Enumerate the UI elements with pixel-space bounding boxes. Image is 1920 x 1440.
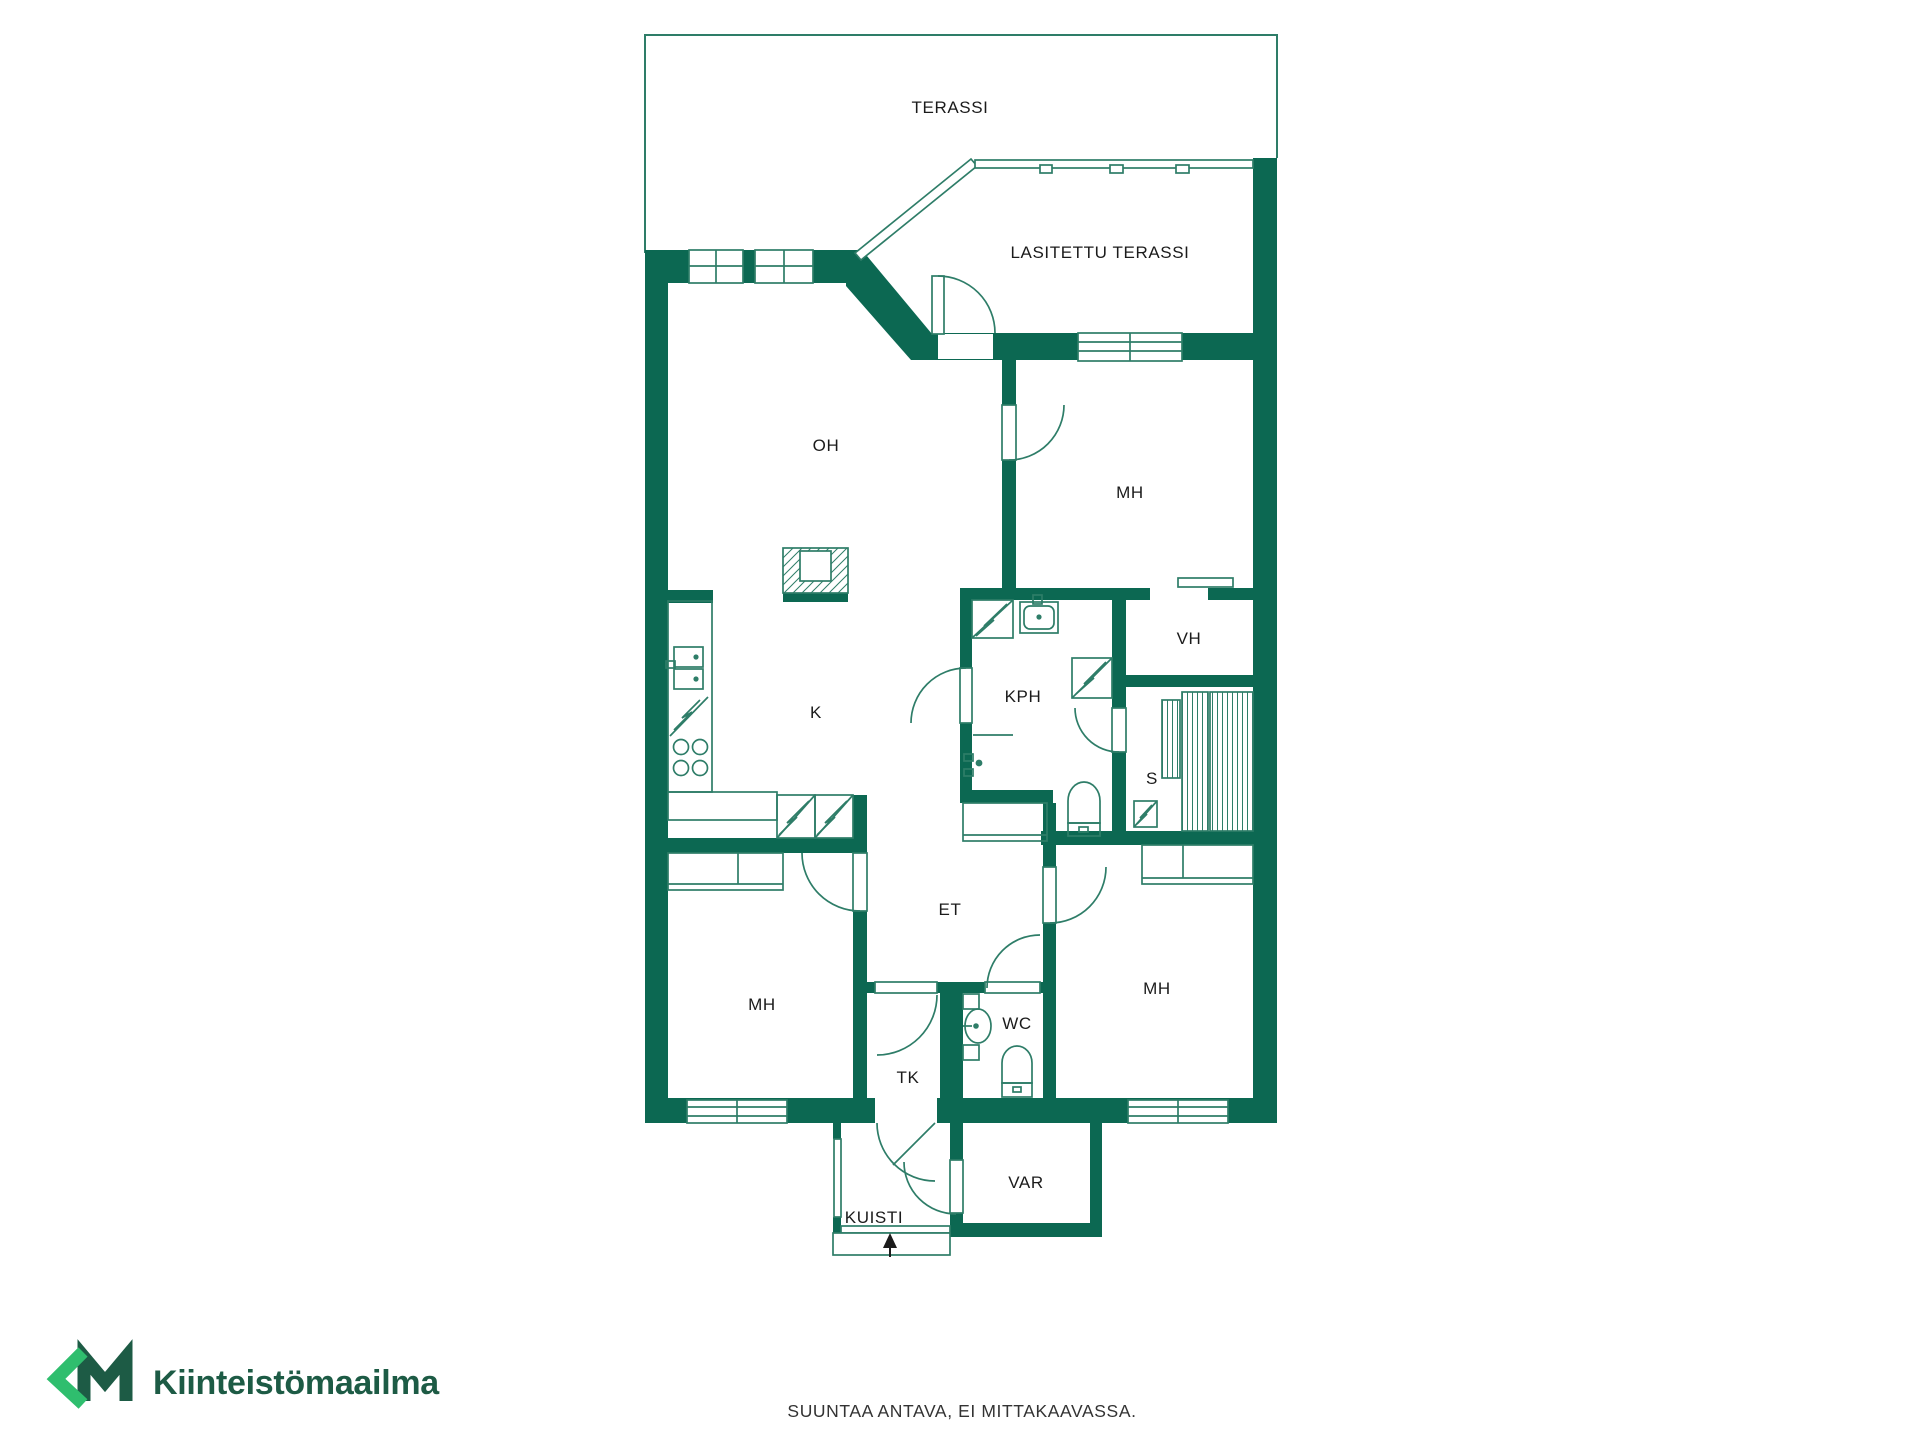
wc-fixtures xyxy=(963,994,1032,1097)
kph-toilet xyxy=(1068,782,1100,836)
door-mh-left xyxy=(802,853,867,911)
room-label-tk: TK xyxy=(897,1068,920,1087)
stove xyxy=(674,740,708,776)
freezer xyxy=(815,795,853,838)
wardrobe-mh-right xyxy=(1142,845,1253,884)
door-kph xyxy=(911,668,972,723)
brand-logo: Kiinteistömaailma xyxy=(56,1352,440,1404)
fireplace xyxy=(783,548,848,593)
floor-plan-svg: TERASSI LASITETTU TERASSI OH MH VH KPH S… xyxy=(0,0,1920,1440)
door-var xyxy=(904,1160,963,1214)
door-wc xyxy=(985,935,1040,993)
washing-machine xyxy=(972,600,1013,638)
room-label-vh: VH xyxy=(1177,629,1202,648)
window-mh-left xyxy=(687,1100,787,1123)
porch-structure xyxy=(833,1139,950,1257)
wc-toilet xyxy=(1002,1046,1032,1097)
disclaimer-text: SUUNTAA ANTAVA, EI MITTAKAAVASSA. xyxy=(787,1401,1136,1421)
room-label-s: S xyxy=(1146,769,1158,788)
window-mh-right xyxy=(1128,1100,1228,1123)
room-label-lasitettu-terassi: LASITETTU TERASSI xyxy=(1011,243,1190,262)
wardrobe-mh-left xyxy=(668,853,783,890)
wc-washbasin xyxy=(963,1009,991,1043)
door-terrace xyxy=(932,276,995,359)
room-label-oh: OH xyxy=(813,436,840,455)
terrace-outline xyxy=(645,35,1277,253)
kitchen-sink xyxy=(666,647,703,689)
room-label-var: VAR xyxy=(1008,1173,1044,1192)
door-et-tk xyxy=(875,982,937,1055)
sauna-stove xyxy=(1134,801,1157,827)
kitchen-fixtures xyxy=(666,601,853,838)
room-label-wc: WC xyxy=(1002,1014,1032,1033)
brand-name: Kiinteistömaailma xyxy=(153,1364,440,1402)
door-oh-mh xyxy=(1002,405,1064,460)
door-kph-sauna xyxy=(1075,708,1126,752)
window-oh-2 xyxy=(755,250,813,283)
kph-washbasin xyxy=(1020,595,1058,633)
wardrobe-et xyxy=(963,803,1047,841)
room-label-kuisti: KUISTI xyxy=(845,1208,903,1227)
km-mark-icon xyxy=(56,1352,126,1404)
room-label-et: ET xyxy=(939,900,962,919)
room-label-mh-right: MH xyxy=(1143,979,1171,998)
floor-plan-page: TERASSI LASITETTU TERASSI OH MH VH KPH S… xyxy=(0,0,1920,1440)
room-label-terassi: TERASSI xyxy=(912,98,989,117)
fridge xyxy=(777,795,815,838)
window-mh-top xyxy=(1078,333,1182,361)
dishwasher xyxy=(670,697,708,736)
sauna-benches xyxy=(1134,692,1253,831)
door-et-mh-right xyxy=(1043,867,1106,923)
room-label-k: K xyxy=(810,703,822,722)
room-label-mh-top: MH xyxy=(1116,483,1144,502)
dryer xyxy=(1072,658,1112,698)
door-front xyxy=(875,1098,937,1181)
window-oh-1 xyxy=(689,250,743,283)
room-label-mh-left: MH xyxy=(748,995,776,1014)
room-label-kph: KPH xyxy=(1005,687,1042,706)
